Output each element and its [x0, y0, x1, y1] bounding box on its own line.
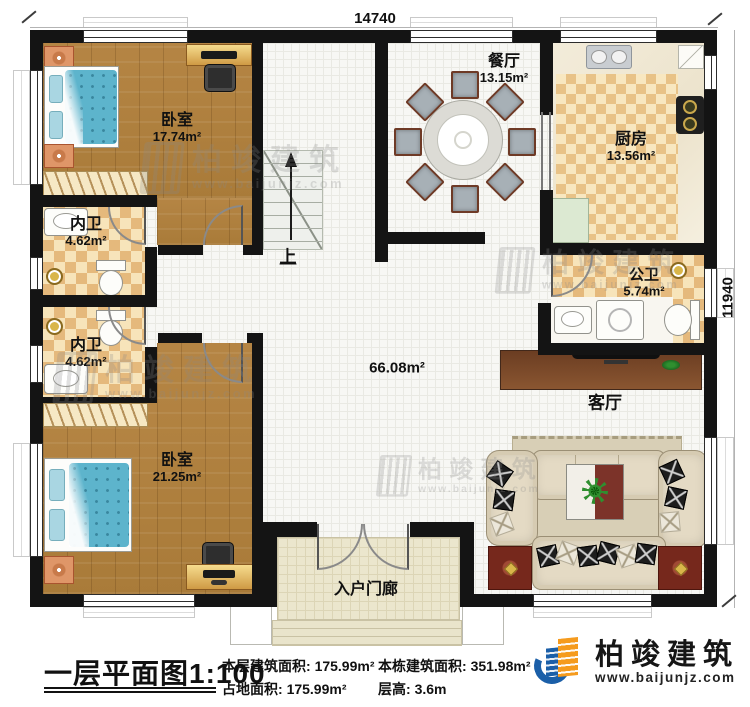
dining-chair: [451, 71, 479, 99]
pillow: [49, 75, 63, 103]
wall: [195, 594, 263, 607]
blanket: [65, 70, 117, 144]
stat-value: 175.99m²: [287, 681, 347, 697]
toilet-icon: [664, 300, 698, 338]
stairs-arrow-head: [285, 152, 297, 167]
room-name: 餐厅: [480, 53, 528, 71]
wall: [30, 290, 43, 345]
washing-machine: [596, 300, 644, 340]
nightstand: [44, 144, 74, 168]
pillow: [493, 489, 516, 512]
blanket: [69, 463, 129, 547]
desk-bedroom2: [186, 564, 254, 590]
stat-value: 175.99m²: [315, 658, 375, 674]
bed-bedroom2: [44, 458, 132, 552]
washer-drum: [608, 308, 632, 332]
wall: [30, 43, 43, 70]
company-name: 柏竣建筑: [595, 640, 739, 671]
wall: [474, 594, 533, 607]
wall: [145, 195, 157, 207]
room-label-public-bathroom: 公卫 5.74m²: [623, 267, 664, 298]
wall: [704, 318, 717, 437]
sink-basin: [53, 370, 79, 387]
room-name: 内卫: [65, 337, 106, 355]
dimension-tick: [21, 10, 36, 23]
window: [533, 594, 652, 607]
dresser-bedroom1: [186, 44, 252, 66]
room-label-bathroom2: 内卫 4.62m²: [65, 337, 106, 369]
logo-building-orange: [558, 637, 578, 677]
window: [30, 345, 43, 383]
dining-table-center: [454, 131, 472, 149]
company-logo-icon: [534, 634, 586, 692]
up-text: 上: [280, 247, 297, 266]
sheet-fold: [69, 463, 89, 547]
window: [83, 594, 195, 607]
dimension-right: 11940: [720, 263, 737, 333]
wall: [460, 522, 474, 607]
room-label-kitchen: 厨房 13.56m²: [607, 131, 655, 163]
wall: [388, 232, 485, 244]
refrigerator: [551, 198, 589, 243]
room-name: 卧室: [153, 112, 201, 130]
title-underline: [44, 687, 216, 689]
stove-icon: [676, 96, 704, 134]
sliding-door-kitchen: [541, 112, 551, 190]
wall: [30, 185, 43, 257]
red-rug: [658, 546, 702, 590]
logo-building-blue: [546, 647, 558, 676]
shower-icon: [670, 262, 687, 279]
pillow: [635, 543, 658, 566]
wall: [540, 243, 717, 255]
mouse-icon: [211, 580, 227, 585]
porch-column-left: [230, 603, 272, 645]
room-area: 4.62m²: [65, 234, 106, 249]
stat-label: 本层建筑面积:: [222, 658, 311, 674]
toilet-bowl: [664, 304, 692, 336]
stairs-arrow: [290, 166, 292, 240]
room-label-dining: 餐厅 13.15m²: [480, 53, 528, 85]
tv-icon: [201, 51, 237, 59]
wall: [538, 343, 704, 355]
chair: [204, 64, 236, 92]
pillow: [49, 509, 65, 541]
stat-value: 3.6m: [415, 681, 447, 697]
wardrobe-bedroom1: [43, 171, 148, 198]
corner-cabinet: [678, 45, 704, 69]
room-label-bedroom1: 卧室 17.74m²: [153, 112, 201, 144]
dining-chair: [508, 128, 536, 156]
wall: [43, 295, 147, 307]
stat-label: 层高:: [378, 681, 411, 697]
room-label-bedroom2: 卧室 21.25m²: [153, 452, 201, 484]
shower-icon: [46, 318, 63, 335]
wardrobe-bedroom2: [43, 403, 148, 427]
wall: [704, 43, 717, 55]
room-area: 13.15m²: [480, 71, 528, 86]
sheet-fold: [65, 70, 83, 144]
stat-footprint: 占地面积: 175.99m²: [222, 678, 375, 701]
wall: [277, 522, 317, 537]
bed-bedroom1: [44, 66, 119, 148]
window-sill: [717, 437, 734, 545]
stats-column-right: 本栋建筑面积: 351.98m² 层高: 3.6m: [378, 655, 531, 701]
dining-chair: [394, 128, 422, 156]
wall: [538, 303, 551, 343]
pillow: [659, 511, 681, 533]
sink-basin: [591, 50, 607, 64]
hall-area-label: 66.08m²: [369, 361, 425, 378]
room-name: 卧室: [153, 452, 201, 470]
room-label-bathroom1: 内卫 4.62m²: [65, 216, 106, 248]
tv-stand: [604, 360, 628, 364]
toilet-icon: [96, 260, 124, 294]
dimension-top: 14740: [345, 10, 405, 27]
wall: [657, 30, 717, 43]
wall: [158, 333, 202, 343]
wall: [540, 43, 553, 115]
shower-icon: [46, 268, 63, 285]
wall: [243, 245, 263, 255]
dimension-tick: [707, 12, 722, 25]
window-sill: [533, 607, 652, 618]
room-area: 5.74m²: [623, 284, 664, 299]
stat-floor-area: 本层建筑面积: 175.99m²: [222, 655, 375, 678]
wall: [252, 43, 263, 245]
room-area: 13.56m²: [607, 149, 655, 164]
stat-floor-height: 层高: 3.6m: [378, 678, 531, 701]
wall: [145, 347, 157, 403]
window: [30, 257, 43, 290]
toilet-bowl: [99, 270, 123, 296]
room-label-living: 客厅: [588, 393, 622, 412]
room-name: 内卫: [65, 216, 106, 234]
dimension-line: [30, 27, 718, 28]
wall: [252, 333, 263, 594]
window-sill: [13, 70, 30, 185]
window: [704, 55, 717, 90]
keyboard-icon: [203, 570, 235, 578]
window: [30, 70, 43, 185]
room-name: 入户门廊: [334, 581, 398, 599]
wall: [410, 522, 460, 537]
window: [704, 437, 717, 545]
company-logo: 柏竣建筑 www.baijunjz.com: [534, 634, 739, 692]
floor-plan-page: 卧室 17.74m² 内卫 4.62m² 内卫 4.62m² 卧室 21.25m…: [0, 0, 750, 707]
sink-basin: [611, 50, 627, 64]
sink-basin: [561, 311, 584, 327]
wall: [263, 522, 277, 607]
wall: [188, 30, 410, 43]
stairs-up-label: 上: [280, 247, 297, 266]
porch-steps: [272, 620, 462, 646]
wall: [652, 594, 717, 607]
burner: [683, 100, 697, 114]
wall: [30, 383, 43, 443]
red-rug: [488, 546, 532, 590]
dining-chair: [451, 185, 479, 213]
floor-porch: [277, 537, 460, 620]
room-area: 4.62m²: [65, 355, 106, 370]
wall: [704, 90, 717, 268]
company-website: www.baijunjz.com: [595, 671, 739, 686]
wall: [43, 397, 157, 403]
porch-column-right: [462, 603, 504, 645]
room-name: 客厅: [588, 393, 622, 412]
stat-label: 本栋建筑面积:: [378, 658, 467, 674]
wall: [30, 594, 83, 607]
window: [410, 30, 513, 43]
wall: [43, 195, 147, 207]
window: [30, 443, 43, 557]
title-underline: [44, 691, 216, 693]
room-name: 厨房: [607, 131, 655, 149]
window: [560, 30, 657, 43]
kitchen-sink: [586, 45, 632, 69]
wall: [540, 190, 553, 245]
wall: [513, 30, 560, 43]
wall: [158, 245, 203, 255]
stat-value: 351.98m²: [471, 658, 531, 674]
pillow: [664, 486, 688, 510]
pillow: [49, 469, 65, 501]
wall: [30, 30, 83, 43]
window-sill: [13, 443, 30, 557]
stats-column-left: 本层建筑面积: 175.99m² 占地面积: 175.99m²: [222, 655, 375, 701]
window: [83, 30, 188, 43]
plant-icon: [582, 478, 608, 504]
room-label-porch: 入户门廊: [334, 581, 398, 599]
window-sill: [83, 607, 195, 618]
room-name: 公卫: [623, 267, 664, 284]
bathroom-sink: [554, 306, 592, 334]
room-area: 17.74m²: [153, 130, 201, 145]
nightstand: [44, 556, 74, 584]
burner: [683, 117, 697, 131]
stat-building-area: 本栋建筑面积: 351.98m²: [378, 655, 531, 678]
pillow: [49, 111, 63, 139]
area-value: 66.08m²: [369, 361, 425, 378]
room-area: 21.25m²: [153, 470, 201, 485]
window: [704, 268, 717, 318]
stat-label: 占地面积:: [222, 681, 283, 697]
plant-icon: [662, 360, 680, 370]
wall: [375, 43, 388, 262]
